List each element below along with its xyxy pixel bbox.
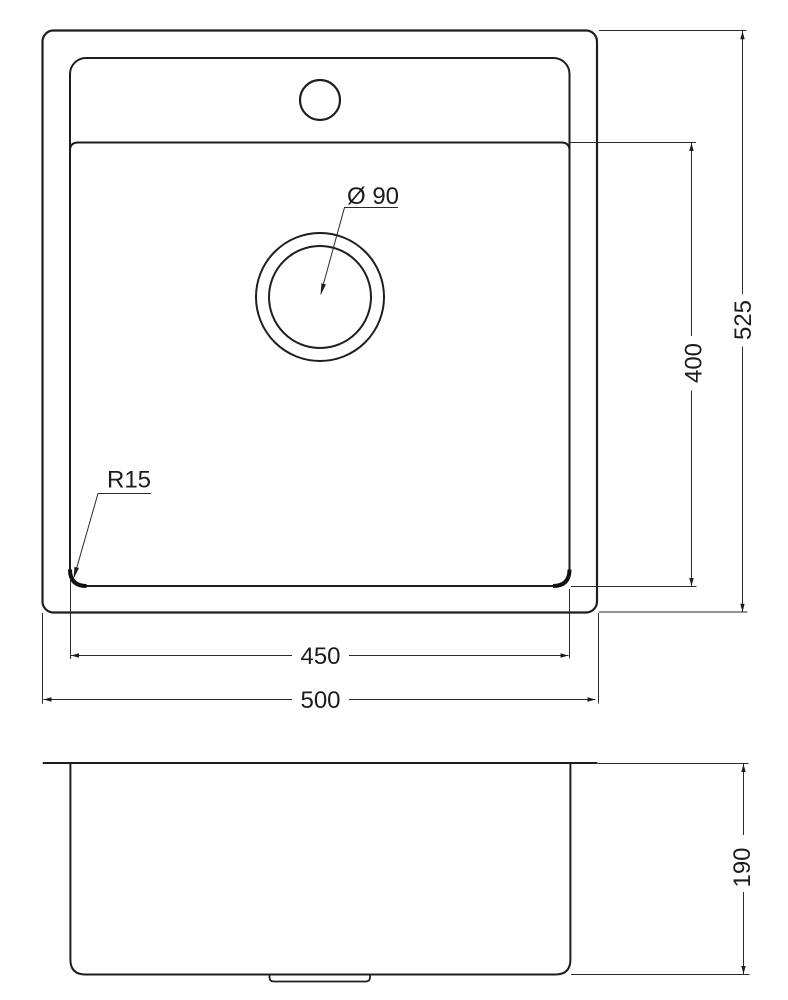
svg-text:500: 500 (300, 687, 340, 714)
svg-text:450: 450 (300, 643, 340, 670)
svg-text:R15: R15 (107, 467, 151, 494)
svg-text:400: 400 (681, 343, 708, 383)
svg-text:Ø 90: Ø 90 (347, 183, 399, 210)
svg-text:190: 190 (729, 847, 756, 887)
svg-text:525: 525 (730, 300, 757, 340)
